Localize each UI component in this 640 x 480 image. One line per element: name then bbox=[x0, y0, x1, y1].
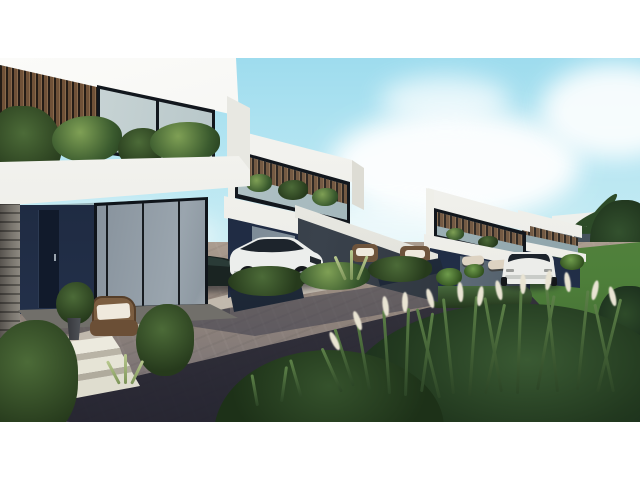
grass-plume bbox=[607, 286, 618, 307]
grass-plume bbox=[494, 280, 504, 301]
grass-plume bbox=[402, 292, 408, 312]
architectural-rendering bbox=[0, 0, 640, 480]
grass-plume bbox=[328, 331, 342, 352]
grass-plume bbox=[351, 310, 363, 331]
letterbox-bottom bbox=[0, 422, 640, 480]
grass-plume bbox=[476, 286, 485, 307]
grass-plume bbox=[544, 270, 553, 291]
grass-plume bbox=[425, 288, 436, 309]
grass-plume bbox=[563, 272, 572, 293]
grass-plume bbox=[457, 282, 464, 302]
grass-plume bbox=[520, 274, 526, 294]
grass-plumes bbox=[0, 58, 640, 422]
grass-plume bbox=[381, 296, 390, 317]
grass-plume bbox=[590, 280, 600, 301]
villa-street-scene bbox=[0, 58, 640, 422]
letterbox-top bbox=[0, 0, 640, 58]
